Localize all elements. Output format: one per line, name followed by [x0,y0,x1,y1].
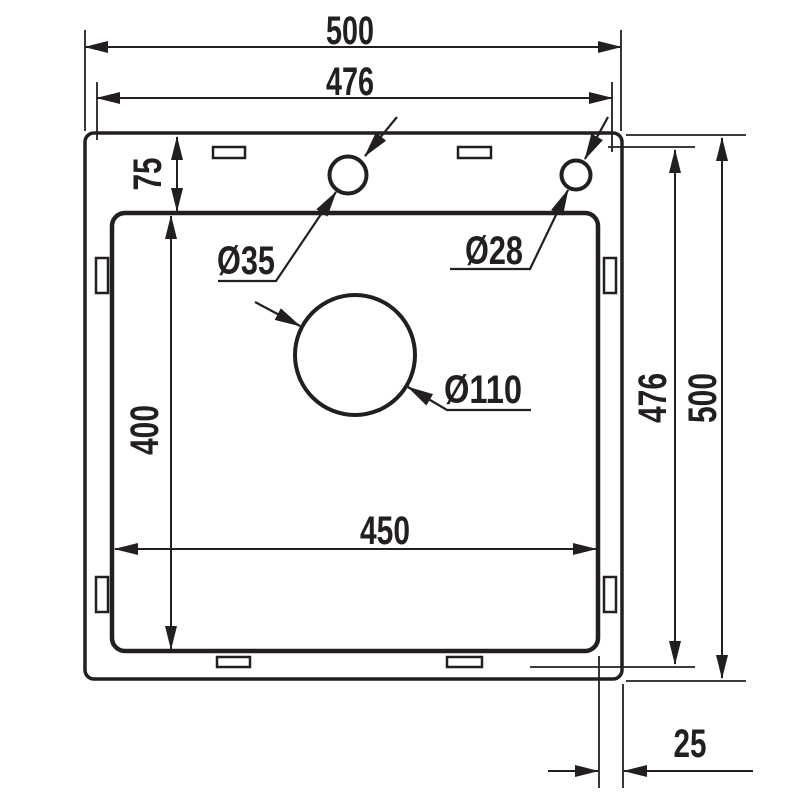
dim-rim-top-offset-label: 75 [126,158,170,191]
dim-cutout-width: 476 [97,60,612,152]
drain-hole-pointer-arrow [255,302,300,326]
dim-cutout-width-label: 476 [326,60,374,104]
faucet-hole-label: Ø35 [217,239,275,283]
dim-bowl-width: 450 [115,509,596,553]
accessory-hole-label: Ø28 [465,229,523,273]
dim-bowl-width-label: 450 [360,509,410,553]
sink-technical-drawing: 500 476 75 400 450 476 500 [0,0,800,800]
mounting-slot-left-bottom [96,577,108,612]
accessory-hole-callout: Ø28 [450,190,568,273]
mounting-slot-right-bottom [604,577,616,612]
mounting-slots [96,147,616,667]
faucet-hole-callout: Ø35 [217,192,336,283]
sink-technical-drawing-page: 500 476 75 400 450 476 500 [0,0,800,800]
dim-edge-offset-label: 25 [674,722,707,766]
accessory-hole [562,161,591,190]
mounting-slot-top-right [458,147,491,158]
dim-bowl-length-label: 400 [123,405,167,455]
mounting-slot-top-left [213,147,245,158]
holes [295,157,591,416]
drain-hole-label: Ø110 [444,368,522,412]
dim-cutout-height-label: 476 [631,373,675,423]
mounting-slot-bottom-right [447,657,482,667]
pointer-arrows [255,117,608,326]
dim-overall-width-label: 500 [326,9,374,53]
accessory-hole-pointer-arrow [585,117,608,159]
dim-overall-height-label: 500 [681,373,725,423]
mounting-slot-left-top [96,258,108,293]
dim-cutout-height: 476 [530,147,695,667]
sink-bowl-outline [112,213,598,651]
drain-hole-callout: Ø110 [408,368,531,412]
dim-bowl-length: 400 [123,216,171,649]
mounting-slot-right-top [604,258,616,293]
drain-hole [295,295,415,415]
faucet-hole [330,157,367,194]
mounting-slot-bottom-left [217,657,250,667]
faucet-hole-pointer-arrow [365,117,397,156]
dim-rim-top-offset: 75 [126,137,177,211]
